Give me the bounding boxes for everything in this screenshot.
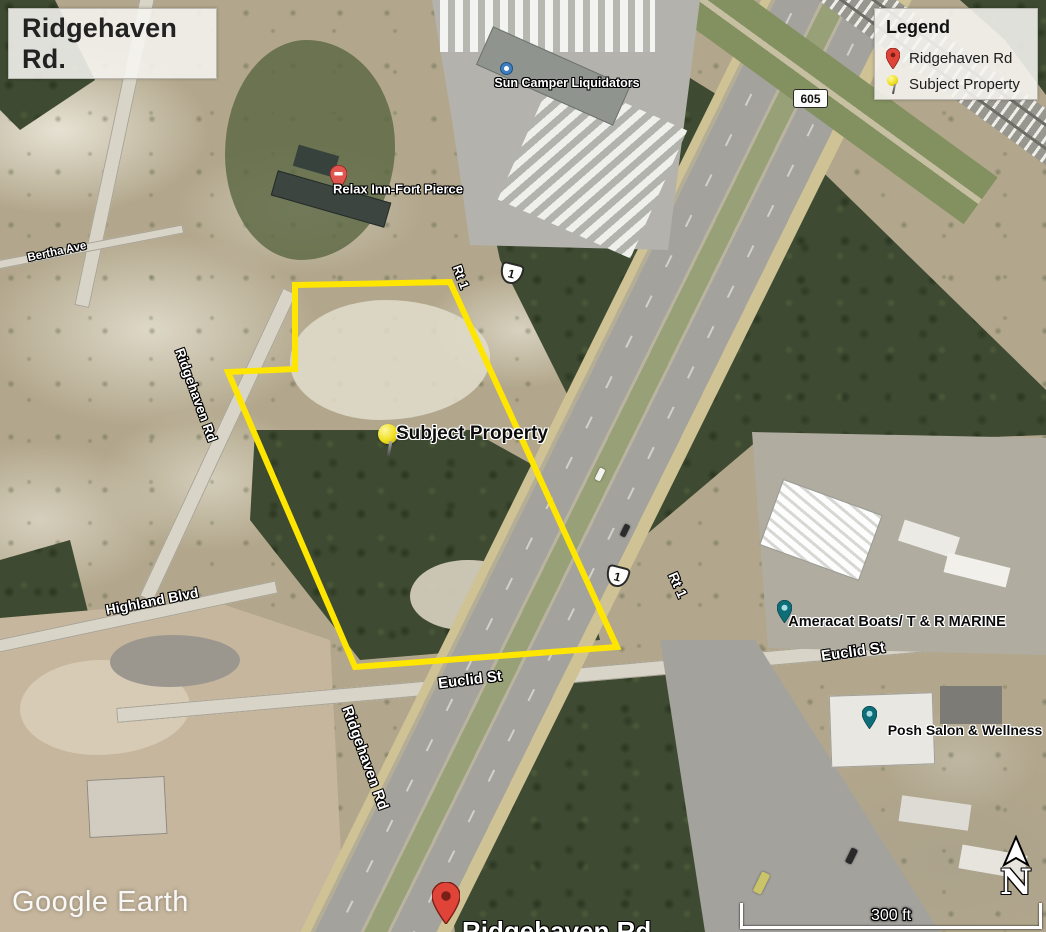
map-title: Ridgehaven Rd.	[22, 13, 216, 75]
pin-callout-label[interactable]: Ridgehaven Rd	[462, 916, 651, 932]
legend-heading: Legend	[886, 17, 1037, 38]
label-sun-camper[interactable]: Sun Camper Liquidators	[494, 76, 639, 90]
label-posh-salon[interactable]: Posh Salon & Wellness	[888, 722, 1043, 738]
rv-rows-top	[440, 0, 655, 52]
label-relax-inn[interactable]: Relax Inn-Fort Pierce	[333, 182, 463, 197]
map-canvas[interactable]: #stage svg polygon{stroke:#ffe600;} Sun …	[0, 0, 1046, 932]
legend-item-label: Subject Property	[909, 76, 1020, 93]
north-label: N	[990, 867, 1042, 899]
building	[940, 686, 1002, 724]
red-map-pin-icon[interactable]	[432, 882, 460, 924]
house-building	[87, 776, 168, 838]
map-title-box: Ridgehaven Rd.	[8, 8, 217, 79]
yellow-pushpin-icon	[886, 74, 900, 95]
legend-item-subject-property: Subject Property	[886, 71, 1037, 97]
legend-item-label: Ridgehaven Rd	[909, 50, 1012, 67]
red-map-pin-icon	[886, 48, 900, 69]
label-subject-property[interactable]: Subject Property	[396, 423, 548, 445]
route-605-marker: 605	[793, 89, 828, 108]
label-ameracat[interactable]: Ameracat Boats/ T & R MARINE	[788, 614, 1006, 630]
teal-place-marker-icon[interactable]	[862, 706, 877, 729]
blue-place-marker-icon[interactable]	[500, 62, 513, 75]
google-earth-watermark: Google Earth	[12, 886, 189, 919]
scale-bar-label: 300 ft	[871, 907, 911, 925]
legend-panel: Legend Ridgehaven Rd Subject Property	[874, 8, 1038, 100]
north-arrow: N	[990, 835, 1042, 909]
legend-item-ridgehaven: Ridgehaven Rd	[886, 45, 1037, 71]
